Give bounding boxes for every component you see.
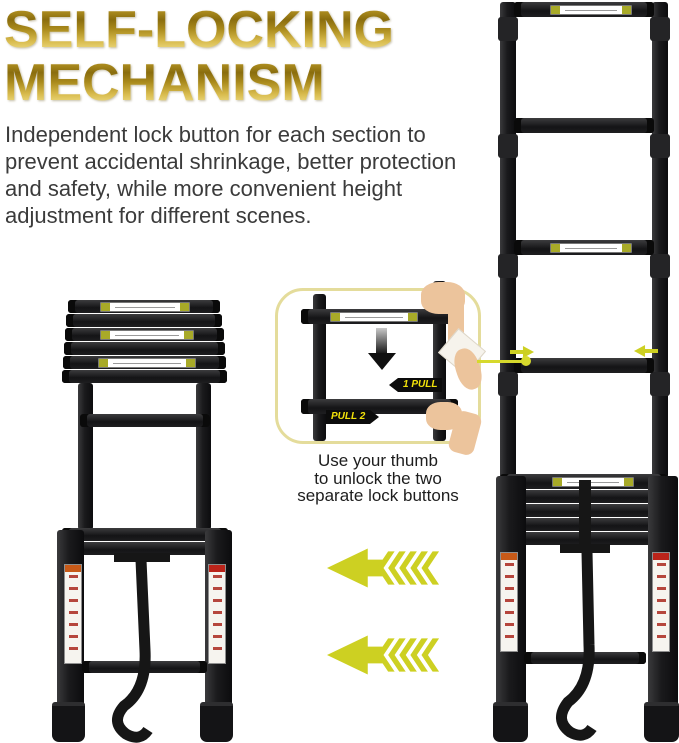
- callout-dot: [521, 356, 531, 366]
- ladder-rung: [514, 118, 654, 133]
- section-collar: [498, 17, 518, 41]
- section-collar: [650, 17, 670, 41]
- section-collar: [498, 134, 518, 158]
- rung-label: [100, 330, 194, 340]
- ladder-rung: [80, 414, 210, 427]
- section-collar: [650, 134, 670, 158]
- strap-clamp: [114, 553, 170, 562]
- caption-line: Use your thumb: [258, 452, 498, 470]
- rung-label: [550, 5, 632, 15]
- headline-line-1: SELF-LOCKING: [4, 4, 394, 56]
- sticker-pictograms: [213, 575, 222, 659]
- rung-label: [98, 358, 196, 368]
- warning-sticker: [208, 564, 226, 664]
- ladder-rail: [500, 2, 516, 478]
- ladder-foot: [493, 702, 528, 742]
- sticker-pictograms: [505, 563, 514, 647]
- ladder-rung: [66, 314, 222, 327]
- section-collar: [650, 254, 670, 278]
- ladder-rail: [652, 2, 668, 478]
- rung-label: [100, 302, 190, 312]
- sticker-header: [209, 565, 225, 572]
- inset-caption: Use your thumb to unlock the two separat…: [258, 452, 498, 505]
- caption-line: to unlock the two: [258, 470, 498, 488]
- warning-sticker: [64, 564, 82, 664]
- ladder-rung: [82, 661, 207, 673]
- ladder-rail: [78, 383, 93, 530]
- sticker-pictograms: [69, 575, 78, 659]
- pull-step-2-label: PULL 2: [326, 410, 370, 424]
- feature-description: Independent lock button for each section…: [5, 121, 465, 229]
- product-infographic: SELF-LOCKING MECHANISM Independent lock …: [0, 0, 679, 743]
- ladder-foot: [644, 702, 679, 742]
- rung-label: [550, 243, 632, 253]
- sticker-header: [653, 553, 669, 560]
- ladder-rung: [514, 358, 654, 373]
- section-collar: [650, 372, 670, 396]
- caption-line: separate lock buttons: [258, 487, 498, 505]
- collapse-arrow-icon: [327, 546, 440, 590]
- headline-line-2: MECHANISM: [4, 57, 325, 109]
- pull-step-1-label: 1 PULL: [398, 378, 442, 392]
- section-collar: [498, 254, 518, 278]
- ladder-foot: [52, 702, 85, 742]
- down-arrow-head-icon: [368, 353, 396, 370]
- rung-label: [330, 312, 418, 322]
- strap-clamp: [560, 544, 610, 553]
- ladder-rung: [62, 528, 228, 541]
- section-collar: [498, 372, 518, 396]
- rung-label: [552, 477, 634, 487]
- sticker-header: [501, 553, 517, 560]
- ladder-rung: [524, 652, 646, 664]
- down-arrow-icon: [376, 328, 387, 354]
- warning-sticker: [500, 552, 518, 652]
- sticker-header: [65, 565, 81, 572]
- ladder-rung: [62, 370, 227, 383]
- ladder-foot: [200, 702, 233, 742]
- ladder-rung: [64, 342, 225, 355]
- ladder-rail: [196, 383, 211, 530]
- sticker-pictograms: [657, 563, 666, 647]
- collapse-arrow-icon: [327, 633, 440, 677]
- warning-sticker: [652, 552, 670, 652]
